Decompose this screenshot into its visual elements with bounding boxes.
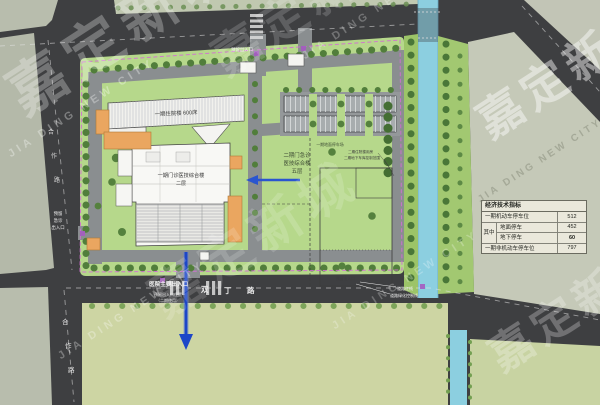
internal-road-right — [392, 50, 404, 262]
building-orange-b — [104, 132, 151, 149]
label-south-reserved: 预留出入口 — [336, 276, 355, 281]
internal-road-bottom — [88, 250, 404, 262]
parking-lot — [280, 92, 400, 136]
svg-text:路: 路 — [54, 176, 60, 184]
internal-road-left — [88, 72, 102, 264]
label-north-entrance: 预留出入口 — [231, 46, 253, 53]
legend-value: 797 — [557, 244, 586, 254]
canal-south — [450, 330, 467, 405]
svg-text:丁: 丁 — [224, 286, 232, 295]
svg-text:合: 合 — [48, 128, 54, 136]
label-phase2-note2: 二期地下车库控制范围 — [344, 155, 380, 160]
legend-group-label: 其中 — [482, 223, 497, 243]
building-annex-a — [118, 150, 132, 176]
label-outpatient-floors: 二层 — [176, 181, 186, 187]
legend-value: 60 — [557, 233, 586, 243]
legend-table: 经济技术指标 一期机动车停车位 512 其中 地面停车 452 地下停车 60 … — [481, 200, 587, 254]
bridge — [414, 8, 442, 42]
label-emergency-1: 预留 — [54, 210, 63, 217]
label-phase2-2: 医技综合楼 — [284, 159, 312, 167]
svg-text:作: 作 — [65, 341, 72, 350]
label-phase2-note1: 二期住院楼用房 — [348, 149, 374, 154]
legend-title: 经济技术指标 — [482, 201, 586, 212]
legend-row-motor: 一期机动车停车位 512 — [482, 212, 586, 223]
legend-value: 452 — [557, 223, 586, 233]
building-courtyard — [146, 152, 160, 162]
svg-text:双: 双 — [201, 285, 209, 294]
svg-text:路: 路 — [68, 365, 75, 374]
building-orange-a — [96, 110, 109, 134]
internal-road-mid — [248, 66, 262, 250]
block-south-west — [0, 287, 52, 405]
label-phase2-3: 五层 — [292, 168, 303, 175]
label-main-entrance-note2: （二期使用） — [156, 297, 180, 303]
block-south-east — [470, 339, 600, 405]
legend-row-nonmotor: 一期非机动车停车位 797 — [482, 244, 586, 254]
building-orange-d — [230, 156, 242, 169]
bank-west — [404, 34, 418, 296]
service-building-b — [288, 54, 304, 66]
label-road-red-line: 道路红线 — [397, 285, 413, 291]
label-outpatient: 一期门诊医技综合楼 — [158, 171, 205, 179]
label-emergency-3: 出入口 — [51, 224, 64, 231]
svg-text:路: 路 — [247, 285, 255, 295]
service-building-a — [240, 62, 256, 73]
label-emergency-2: 急诊 — [54, 217, 63, 224]
label-phase2-1: 二期门急诊 — [284, 151, 312, 159]
label-main-entrance: 医院主要出入口 — [149, 280, 189, 288]
svg-text:作: 作 — [51, 152, 57, 160]
canal-north — [418, 0, 438, 298]
legend-label: 地下停车 — [497, 233, 557, 243]
building-orange-e — [87, 238, 100, 250]
legend-label: 一期非机动车停车位 — [482, 244, 557, 254]
block-south — [82, 303, 448, 405]
label-road-green-line: 道路绿化控制线 — [390, 292, 418, 298]
site-plan-map: 一期住院楼 600床 一期门诊医技综合楼 二层 二期门急诊 医技综合楼 五层 二… — [0, 0, 600, 405]
label-main-entrance-note1: 预留出入口位置 — [154, 291, 182, 297]
legend-row-surface: 地面停车 452 — [497, 223, 586, 233]
building-annex-b — [116, 184, 132, 206]
label-parking: 一期地面停车场 — [316, 142, 343, 147]
legend-label: 地面停车 — [497, 223, 557, 233]
svg-text:合: 合 — [62, 317, 69, 326]
building-courtyard — [176, 152, 190, 162]
legend-value: 512 — [557, 212, 586, 222]
legend-label: 一期机动车停车位 — [482, 212, 557, 222]
guard-house — [200, 252, 209, 260]
building-orange-c — [228, 196, 242, 242]
legend-row-group: 其中 地面停车 452 地下停车 60 — [482, 223, 586, 244]
legend-row-underground: 地下停车 60 — [497, 232, 586, 243]
